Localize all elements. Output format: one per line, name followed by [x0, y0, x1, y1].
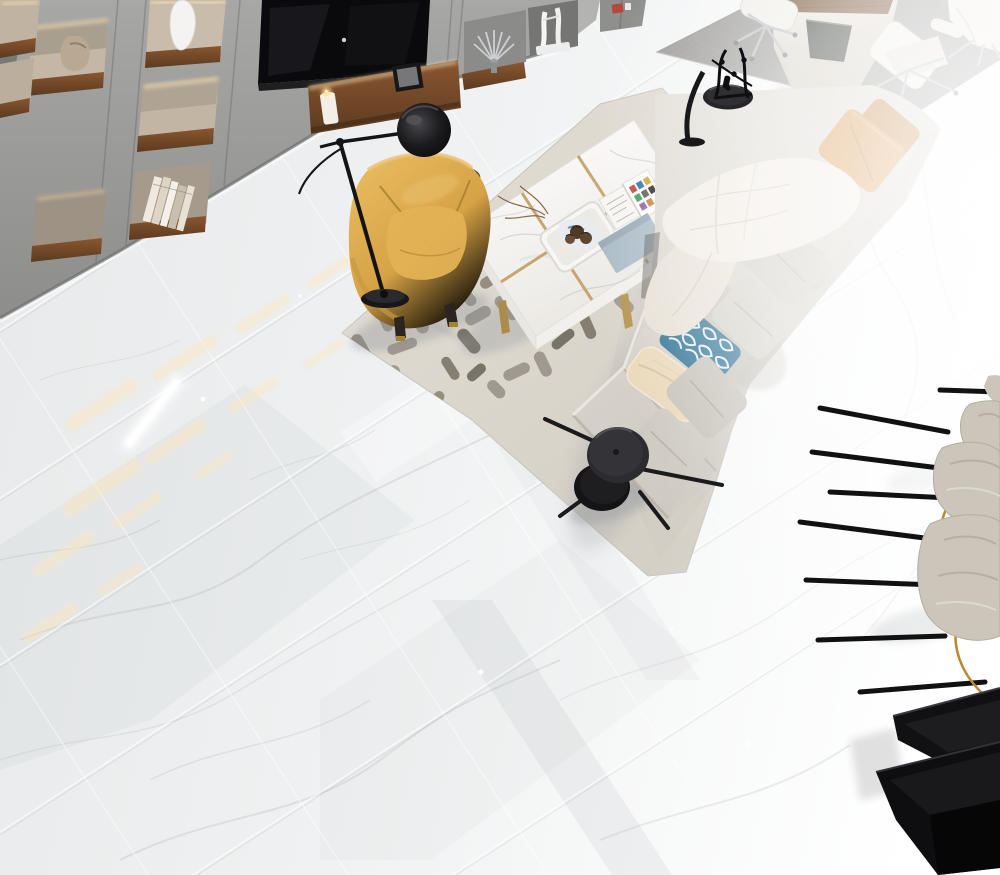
living-room-photo: Top-down view of a bright modern living … [0, 0, 1000, 875]
scene [0, 0, 1000, 875]
window-light-wash [0, 0, 1000, 875]
